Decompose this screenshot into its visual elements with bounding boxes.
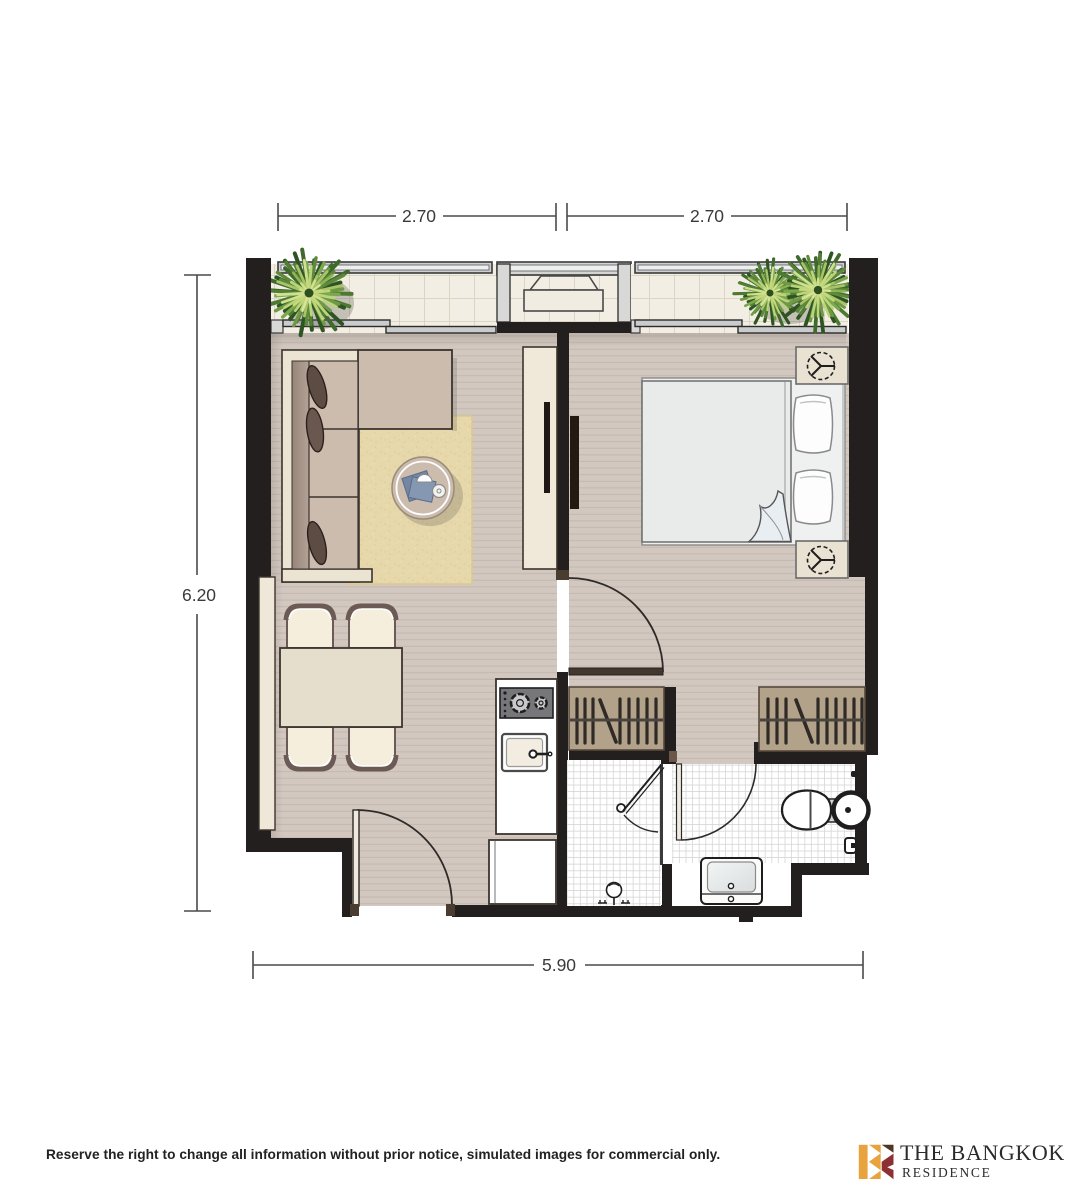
svg-text:RESIDENCE: RESIDENCE	[902, 1165, 992, 1180]
svg-text:2.70: 2.70	[690, 206, 724, 226]
svg-text:Reserve the right to change al: Reserve the right to change all informat…	[46, 1147, 720, 1162]
svg-text:THE BANGKOK: THE BANGKOK	[900, 1140, 1065, 1165]
svg-text:2.70: 2.70	[402, 206, 436, 226]
svg-text:5.90: 5.90	[542, 955, 576, 975]
svg-text:6.20: 6.20	[182, 585, 216, 605]
